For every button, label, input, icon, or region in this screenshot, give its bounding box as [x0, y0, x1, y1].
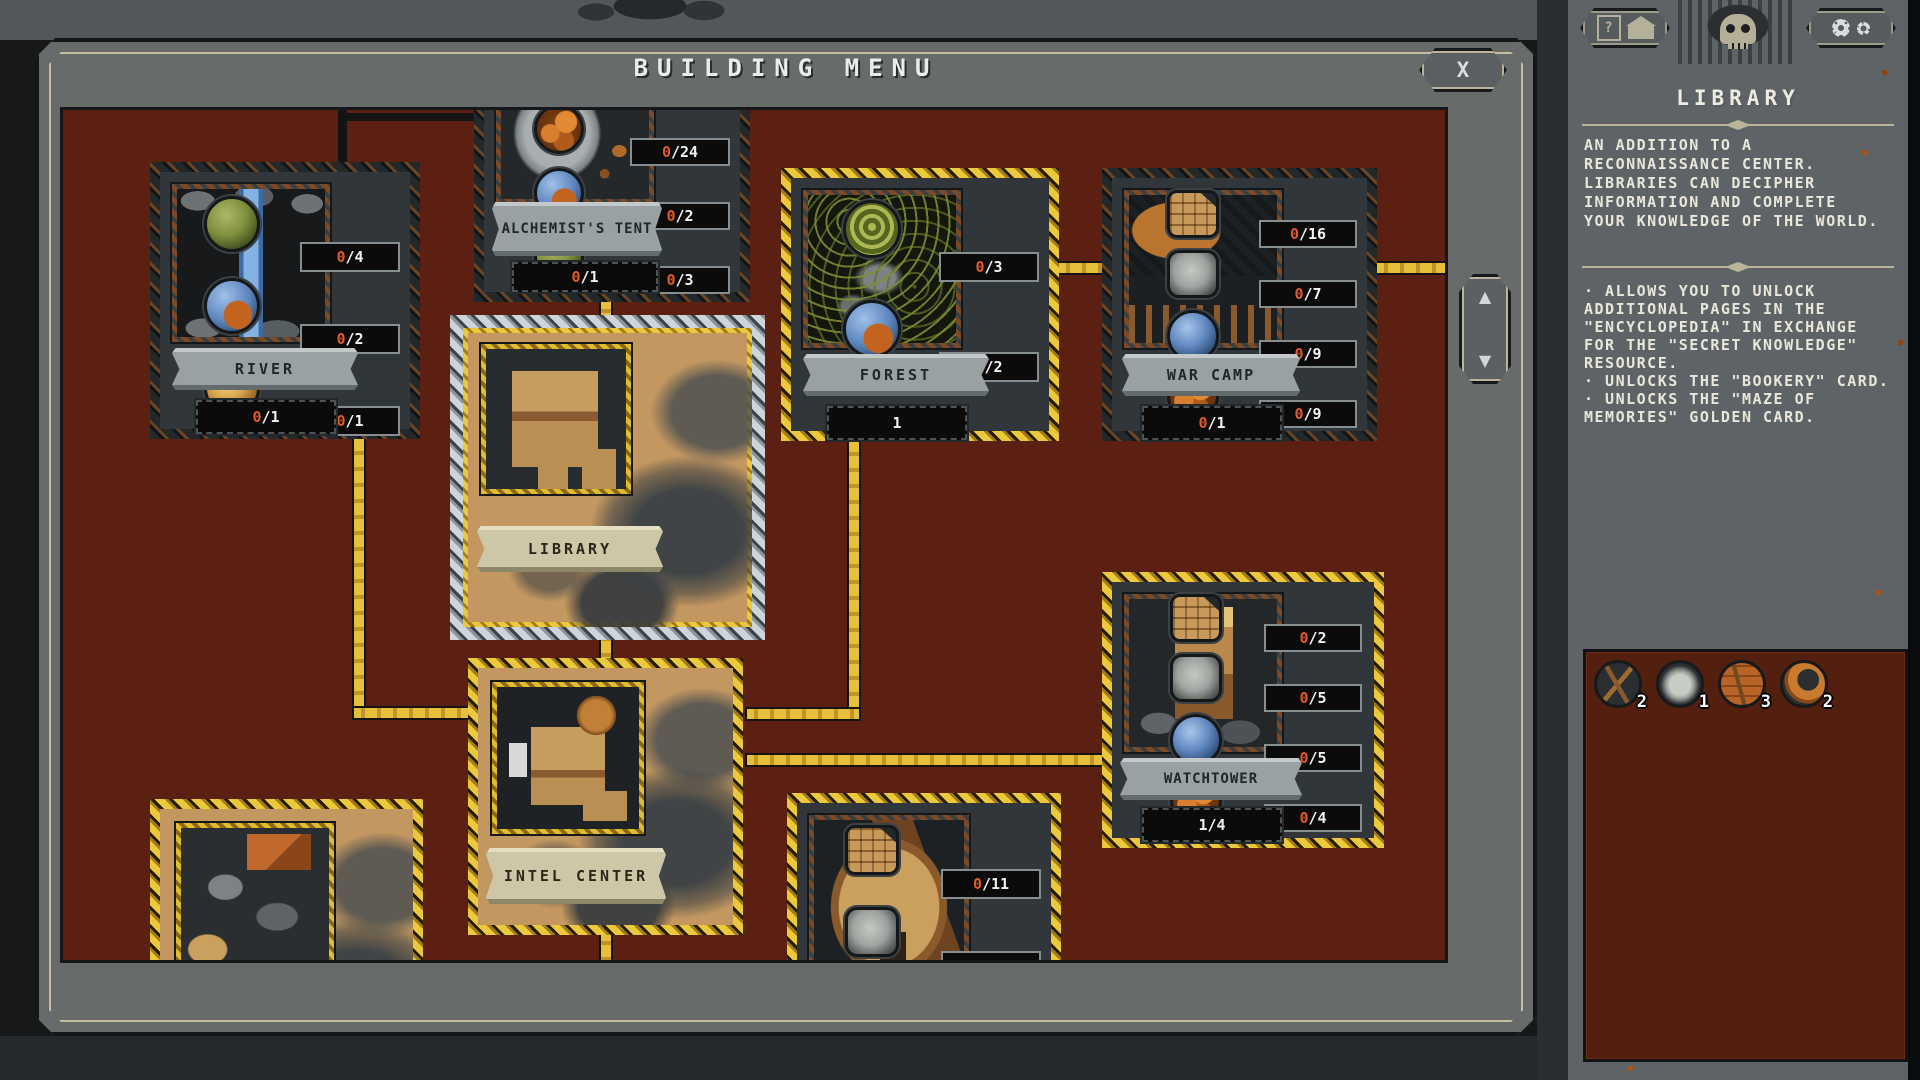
building-menu-window: BUILDING MENU X 0/4 0/2 0/1 RIVER	[35, 38, 1537, 1036]
cost-item: 1	[1656, 660, 1704, 708]
house-icon	[1628, 26, 1654, 39]
building-card-alchemists-tent[interactable]: 0/24 0/2 0/3 ALCHEMIST'S TENT 0/1	[474, 107, 750, 302]
question-mark-icon: ?	[1597, 15, 1621, 41]
building-name: RIVER	[172, 348, 358, 390]
cost-item: 2	[1594, 660, 1642, 708]
build-count: 0/1	[196, 400, 336, 434]
scroll-control[interactable]: ▲ ▼	[1459, 274, 1511, 384]
swirl-sphere-icon	[204, 278, 260, 334]
connector-line	[745, 707, 861, 721]
divider-ornament	[1582, 124, 1894, 126]
moss-sphere-icon	[204, 196, 260, 252]
close-button[interactable]: X	[1419, 48, 1507, 92]
building-name: LIBRARY	[477, 526, 663, 572]
building-name: INTEL CENTER	[486, 848, 666, 904]
resource-counter: 0/2	[1264, 624, 1362, 652]
resource-counter: 0/3	[939, 252, 1039, 282]
cost-count: 1	[1699, 692, 1709, 712]
winged-skull-emblem	[1678, 0, 1798, 64]
building-card-watchtower[interactable]: 0/2 0/5 0/5 0/4 WATCHTOWER 1/4	[1102, 572, 1384, 848]
building-name: ALCHEMIST'S TENT	[492, 202, 662, 256]
bricks-resource-icon	[1718, 660, 1766, 708]
cost-item: 2	[1780, 660, 1828, 708]
building-card-ruins[interactable]	[150, 799, 423, 963]
build-tree-canvas: 0/4 0/2 0/1 RIVER 0/1 0/24 0/2 0/3 ALCHE…	[60, 107, 1448, 963]
resource-counter: 0/7	[1259, 280, 1357, 308]
building-card-forest[interactable]: 0/3 0/2 FOREST 1	[781, 168, 1059, 441]
stone-resource-icon	[1656, 660, 1704, 708]
settings-button[interactable]	[1806, 8, 1896, 48]
build-cost-panel: 2 1 3 2	[1583, 649, 1908, 1062]
resource-counter: 0/2	[941, 951, 1041, 963]
scroll-up-icon[interactable]: ▲	[1479, 290, 1491, 304]
stone-block-icon	[1167, 250, 1219, 298]
building-thumbnail	[492, 682, 644, 834]
screen-edge	[1908, 0, 1920, 1080]
resource-counter: 0/16	[1259, 220, 1357, 248]
green-spiral-icon	[843, 200, 901, 258]
build-count: 0/1	[1142, 406, 1282, 440]
background-decoration	[560, 0, 740, 30]
building-bullet: · UNLOCKS THE "BOOKERY" CARD.	[1584, 372, 1892, 390]
resource-counter: 0/4	[300, 242, 400, 272]
building-thumbnail	[176, 823, 334, 963]
building-description: AN ADDITION TO A RECONNAISSANCE CENTER. …	[1584, 136, 1886, 231]
building-name: WATCHTOWER	[1120, 758, 1302, 800]
cost-item: 3	[1718, 660, 1766, 708]
stone-block-icon	[845, 907, 899, 957]
horn-resource-icon	[1780, 660, 1828, 708]
connector-line	[745, 753, 1107, 767]
building-name: WAR CAMP	[1122, 354, 1300, 396]
building-card-war-camp[interactable]: 0/16 0/7 0/9 0/9 WAR CAMP 0/1	[1102, 168, 1377, 441]
connector-line	[338, 113, 478, 121]
build-count: 1/4	[1142, 808, 1282, 842]
background-gap	[1537, 0, 1568, 1080]
swirl-sphere-icon	[843, 300, 901, 358]
build-count: 1	[827, 406, 967, 440]
resource-counter: 0/24	[630, 138, 730, 166]
background-bottom-band	[0, 1036, 1568, 1080]
window-title: BUILDING MENU	[35, 54, 1537, 82]
gear-icon-small	[1857, 22, 1870, 35]
building-bullet: · ALLOWS YOU TO UNLOCK ADDITIONAL PAGES …	[1584, 282, 1892, 372]
connector-line	[1057, 261, 1108, 275]
wood-planks-icon	[1170, 594, 1222, 642]
building-thumbnail	[481, 344, 631, 494]
clay-pots-icon	[534, 107, 584, 154]
building-bullet: · UNLOCKS THE "MAZE OF MEMORIES" GOLDEN …	[1584, 390, 1892, 426]
wood-planks-icon	[1167, 190, 1219, 238]
wood-planks-icon	[845, 825, 899, 875]
sidebar-title: LIBRARY	[1568, 86, 1908, 110]
close-icon: X	[1457, 58, 1470, 82]
building-card-hut[interactable]: 0/11 0/2	[787, 793, 1061, 963]
stone-block-icon	[1170, 654, 1222, 702]
divider-ornament	[1582, 266, 1894, 268]
cost-count: 3	[1761, 692, 1771, 712]
cost-count: 2	[1823, 692, 1833, 712]
background-top-band	[0, 0, 1568, 40]
help-home-button[interactable]: ?	[1580, 8, 1670, 48]
building-name: FOREST	[803, 354, 989, 396]
building-card-library[interactable]: LIBRARY	[450, 315, 765, 640]
connector-line	[352, 706, 476, 720]
building-card-river[interactable]: 0/4 0/2 0/1 RIVER 0/1	[150, 162, 420, 439]
resource-counter: 0/5	[1264, 684, 1362, 712]
connector-line	[1375, 261, 1448, 275]
cost-count: 2	[1637, 692, 1647, 712]
resource-counter: 0/11	[941, 869, 1041, 899]
building-card-intel-center[interactable]: INTEL CENTER	[468, 658, 743, 935]
dirt-decoration	[1628, 1066, 1633, 1071]
scroll-down-icon[interactable]: ▼	[1479, 354, 1491, 368]
connector-line	[352, 436, 366, 720]
skull-icon	[1720, 14, 1756, 44]
branches-resource-icon	[1594, 660, 1642, 708]
build-count: 0/1	[512, 262, 658, 292]
info-sidebar: ? LIBRARY AN ADDITION TO A RECONNAISSANC…	[1568, 0, 1908, 1080]
connector-line	[847, 439, 861, 721]
gear-icon	[1832, 19, 1850, 37]
